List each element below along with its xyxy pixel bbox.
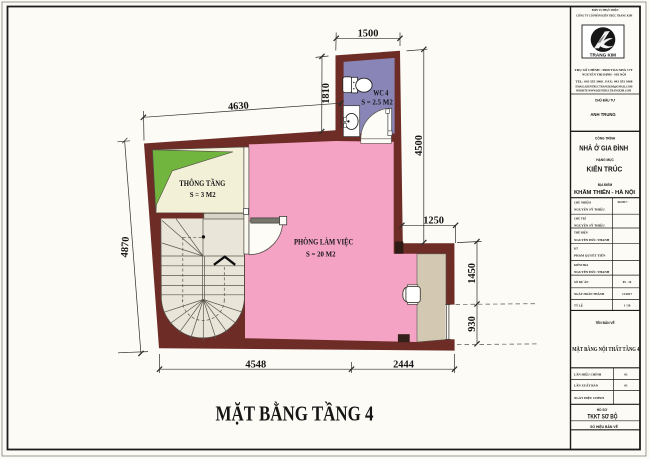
svg-text:TÊN BẢN VẼ: TÊN BẢN VẼ (595, 320, 614, 325)
svg-text:S = 20 M2: S = 20 M2 (306, 250, 336, 259)
svg-text:NGUYỄN SỸ THIỆU: NGUYỄN SỸ THIỆU (574, 207, 605, 212)
svg-text:KHÂM THIÊN - HÀ NỘI: KHÂM THIÊN - HÀ NỘI (574, 188, 635, 196)
svg-text:4870: 4870 (119, 236, 131, 257)
svg-text:NGÀY HIỆU CHỈNH: NGÀY HIỆU CHỈNH (574, 395, 604, 400)
svg-text:KIẾN TRÚC: KIẾN TRÚC (587, 163, 623, 173)
svg-text:ANH TRUNG: ANH TRUNG (590, 112, 616, 117)
svg-text:TRỤ SỞ CHÍNH : P608 TÒA NHÀ 17: TRỤ SỞ CHÍNH : P608 TÒA NHÀ 17T (575, 67, 634, 72)
svg-text:1 / 50: 1 / 50 (624, 304, 631, 308)
svg-text:LẦN HIỆU CHỈNH: LẦN HIỆU CHỈNH (574, 372, 602, 377)
svg-text:LẦN XUẤT BẢN: LẦN XUẤT BẢN (574, 383, 599, 388)
svg-text:NGUYỄN THỊ ĐỊNH - HÀ NỘI: NGUYỄN THỊ ĐỊNH - HÀ NỘI (582, 72, 627, 77)
svg-text:2444: 2444 (393, 360, 414, 371)
svg-text:TEL: 043 555 3468 . FAX: 043 5: TEL: 043 555 3468 . FAX: 043 555 3468 (576, 80, 633, 84)
svg-text:CHỦ TRÌ: CHỦ TRÌ (574, 218, 586, 221)
svg-text:1500: 1500 (358, 29, 379, 40)
svg-text:ĐƠN VỊ THỰC HIỆN: ĐƠN VỊ THỰC HIỆN (592, 7, 619, 12)
svg-text:THÔNG TẦNG: THÔNG TẦNG (179, 178, 225, 188)
svg-text:CÔNG TY CỔ PHẦN KIẾN TRÚC TRAN: CÔNG TY CỔ PHẦN KIẾN TRÚC TRANG KIM (576, 12, 633, 17)
svg-text:05 - 16: 05 - 16 (623, 280, 632, 284)
svg-text:KIỂM TRA: KIỂM TRA (574, 264, 588, 267)
svg-text:S = 3 M2: S = 3 M2 (190, 190, 216, 199)
svg-text:NGUYỄN ĐỨC THANH: NGUYỄN ĐỨC THANH (574, 237, 610, 242)
svg-text:S = 2.5 M2: S = 2.5 M2 (361, 97, 393, 106)
svg-text:930: 930 (467, 316, 478, 332)
svg-text:ĐỊA ĐIỂM: ĐỊA ĐIỂM (598, 182, 613, 187)
svg-text:MẶT BẰNG TẦNG 4: MẶT BẰNG TẦNG 4 (215, 402, 373, 426)
svg-text:TRANG KIM: TRANG KIM (590, 53, 617, 58)
svg-text:1810: 1810 (321, 83, 332, 104)
svg-text:4630: 4630 (228, 100, 249, 112)
svg-text:SỐ DỰ ÁN: SỐ DỰ ÁN (574, 279, 589, 284)
svg-text:CHỦ ĐẦU TƯ: CHỦ ĐẦU TƯ (595, 97, 616, 102)
svg-text:NGÀY HOÀN THÀNH: NGÀY HOÀN THÀNH (574, 291, 605, 296)
svg-text:TỶ LỆ: TỶ LỆ (574, 303, 583, 308)
svg-text:PHẠM QUYẾT TIẾN: PHẠM QUYẾT TIẾN (574, 253, 606, 258)
svg-text:4500: 4500 (414, 135, 425, 156)
svg-text:PHÒNG LÀM VIỆC: PHÒNG LÀM VIỆC (294, 236, 353, 246)
svg-text:HẠNG MỤC: HẠNG MỤC (596, 158, 614, 162)
svg-text:TKKT SƠ BỘ: TKKT SƠ BỘ (587, 413, 617, 421)
svg-text:01: 01 (624, 384, 628, 388)
svg-text:KT: KT (574, 247, 578, 250)
svg-text:WEBSITE:WWW.KIENTRUCTRANGKIM.C: WEBSITE:WWW.KIENTRUCTRANGKIM.COM (576, 89, 631, 93)
svg-text:THỂ HIỆN: THỂ HIỆN (574, 232, 588, 235)
svg-text:SỐ HIỆU BẢN VẼ: SỐ HIỆU BẢN VẼ (590, 424, 618, 429)
svg-text:04/2017 :: 04/2017 : (618, 201, 629, 204)
svg-text:HỒ SƠ: HỒ SƠ (597, 407, 608, 412)
svg-text:4548: 4548 (245, 360, 266, 371)
svg-text:11/2017: 11/2017 (622, 292, 632, 296)
svg-text:1250: 1250 (423, 216, 444, 227)
svg-text:WC 4: WC 4 (373, 89, 388, 98)
svg-text:MẶT BẰNG NỘI THẤT TẦNG 4: MẶT BẰNG NỘI THẤT TẦNG 4 (572, 345, 639, 353)
svg-text:NHÀ Ở GIA ĐÌNH: NHÀ Ở GIA ĐÌNH (579, 143, 628, 152)
svg-text:CÔNG TRÌNH: CÔNG TRÌNH (595, 135, 616, 140)
svg-text:CHỦ NHIỆM: CHỦ NHIỆM (574, 201, 591, 204)
svg-text:01: 01 (624, 373, 628, 377)
svg-text:NGUYỄN SỸ THIỆU: NGUYỄN SỸ THIỆU (574, 222, 605, 227)
svg-text:1450: 1450 (467, 263, 478, 284)
svg-text:NGUYỄN ĐỨC THANH: NGUYỄN ĐỨC THANH (574, 269, 610, 274)
